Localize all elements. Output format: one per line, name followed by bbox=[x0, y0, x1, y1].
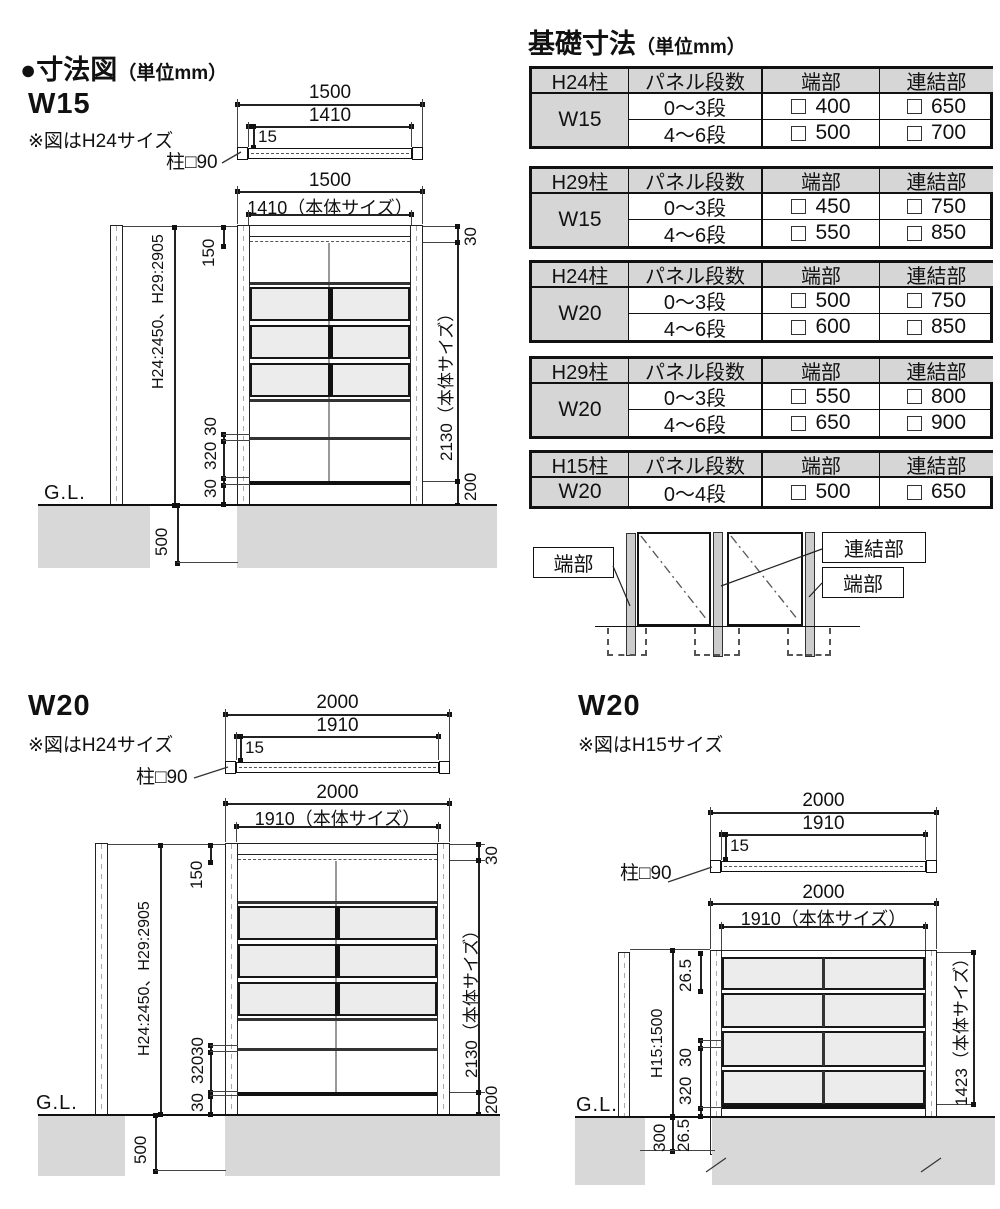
col-header-end: 端部 bbox=[763, 263, 880, 288]
end-value-cell: 400 bbox=[763, 94, 880, 120]
dim-line bbox=[236, 736, 439, 738]
rail bbox=[238, 901, 437, 904]
dim-line bbox=[223, 434, 225, 505]
post-cap-top-view bbox=[926, 860, 937, 873]
joint-value-cell: 800 bbox=[880, 384, 993, 410]
end-value: 500 bbox=[815, 480, 850, 504]
dim-label: 200 bbox=[482, 1086, 502, 1114]
dim-label: 1410（本体サイズ） bbox=[243, 194, 417, 220]
dim-line bbox=[725, 834, 727, 860]
dim-label: 1410 bbox=[248, 105, 412, 127]
w15-section-label: W15 bbox=[28, 88, 91, 121]
ext-line bbox=[925, 830, 926, 860]
bottom-rail bbox=[722, 1105, 925, 1109]
ground-fill bbox=[237, 506, 497, 568]
dim-label: 320 bbox=[201, 442, 221, 470]
end-value-cell: 500 bbox=[763, 478, 880, 506]
page-title: ●寸法図（単位mm） bbox=[20, 48, 227, 87]
dim-line bbox=[248, 214, 412, 216]
col-header-joint: 連結部 bbox=[880, 359, 993, 384]
dim-label: 30 bbox=[461, 227, 481, 246]
dim-label: 1423（本体サイズ） bbox=[947, 950, 972, 1106]
panel-center-line bbox=[822, 1071, 825, 1104]
end-value: 550 bbox=[815, 221, 850, 245]
foundation-outline bbox=[607, 628, 647, 656]
legend-label-end-right: 端部 bbox=[822, 567, 904, 598]
w15-size-note: ※図はH24サイズ bbox=[28, 126, 173, 153]
size-cell: W20 bbox=[532, 288, 629, 340]
dim-label: 1910 bbox=[721, 813, 926, 835]
post-size-label: 柱□90 bbox=[166, 147, 218, 174]
w20h24-size-note: ※図はH24サイズ bbox=[28, 730, 173, 757]
dim-label: H24:2450、H29:2905 bbox=[130, 901, 154, 1056]
ext-line bbox=[423, 481, 457, 482]
col-header-end: 端部 bbox=[763, 453, 880, 478]
square-symbol bbox=[907, 199, 922, 214]
dim-line bbox=[721, 834, 926, 836]
dim-line bbox=[237, 191, 423, 193]
dim-line bbox=[973, 952, 975, 1105]
dim-label: 150 bbox=[187, 861, 207, 889]
ext-line bbox=[210, 1095, 238, 1096]
steps-cell: 0〜3段 bbox=[629, 94, 763, 120]
size-cell: W15 bbox=[532, 194, 629, 246]
post-cap-top-view bbox=[439, 761, 450, 774]
square-symbol bbox=[791, 416, 806, 431]
dimension-drawing-page: { "header": {"title": "●寸法図", "unit": "（… bbox=[0, 0, 1000, 1209]
dim-label: 30 bbox=[188, 1093, 208, 1112]
ext-line bbox=[210, 1045, 238, 1046]
joint-value: 700 bbox=[931, 121, 966, 145]
end-value-cell: 650 bbox=[763, 410, 880, 436]
end-value-cell: 500 bbox=[763, 120, 880, 146]
rail bbox=[250, 282, 410, 285]
ext-line bbox=[438, 732, 439, 760]
square-symbol bbox=[791, 389, 806, 404]
square-symbol bbox=[907, 320, 922, 335]
joint-value: 750 bbox=[931, 195, 966, 219]
dim-line bbox=[253, 126, 255, 148]
dim-label: 30 bbox=[188, 1037, 208, 1056]
dim-label: 30 bbox=[482, 846, 502, 865]
end-value: 650 bbox=[815, 411, 850, 435]
dim-line bbox=[721, 926, 926, 928]
legend-label-end-left: 端部 bbox=[533, 547, 614, 578]
ext-line bbox=[936, 898, 937, 949]
post-size-label: 柱□90 bbox=[136, 762, 188, 789]
w20h15-section-label: W20 bbox=[578, 690, 641, 723]
fence-panel bbox=[722, 1070, 925, 1105]
col-header-joint: 連結部 bbox=[880, 263, 993, 288]
ground-fill bbox=[225, 1116, 500, 1176]
ext-line bbox=[422, 99, 423, 147]
col-header-end: 端部 bbox=[763, 169, 880, 194]
foundation-table-h24-w20: H24柱 パネル段数 端部 連結部 W20 0〜3段 500 750 4〜6段 … bbox=[529, 260, 993, 343]
dim-label: 15 bbox=[245, 738, 264, 758]
square-symbol bbox=[791, 226, 806, 241]
col-header-end: 端部 bbox=[763, 359, 880, 384]
ext-line bbox=[925, 922, 926, 950]
dim-label: 200 bbox=[461, 473, 481, 501]
dim-label: 500 bbox=[131, 1136, 151, 1164]
steps-cell: 0〜3段 bbox=[629, 384, 763, 410]
ext-line bbox=[449, 709, 450, 761]
col-header-joint: 連結部 bbox=[880, 453, 993, 478]
fence-panel bbox=[238, 944, 437, 978]
end-value: 600 bbox=[815, 315, 850, 339]
col-header-post: H24柱 bbox=[532, 263, 629, 288]
steps-cell: 0〜3段 bbox=[629, 288, 763, 314]
foundation-table-h15-w20: H15柱 パネル段数 端部 連結部 W20 0〜4段 500 650 bbox=[529, 450, 993, 509]
panel-mullion bbox=[328, 364, 333, 396]
end-value: 500 bbox=[815, 121, 850, 145]
panel-mullion bbox=[335, 907, 340, 939]
ground-line bbox=[38, 1114, 500, 1116]
end-value: 400 bbox=[815, 95, 850, 119]
bar-dashed-core bbox=[251, 153, 409, 154]
square-symbol bbox=[907, 126, 922, 141]
steps-cell: 4〜6段 bbox=[629, 120, 763, 146]
ext-line bbox=[210, 1091, 238, 1092]
col-header-post: H24柱 bbox=[532, 69, 629, 94]
ext-line bbox=[223, 434, 250, 435]
dim-label: 2130（本体サイズ） bbox=[457, 922, 482, 1078]
dim-label: 2000 bbox=[710, 790, 937, 812]
joint-value: 800 bbox=[931, 385, 966, 409]
dim-label: 500 bbox=[152, 528, 172, 556]
dim-label: 2000 bbox=[225, 692, 450, 714]
ext-line bbox=[210, 1051, 238, 1052]
panel-mullion bbox=[335, 983, 340, 1015]
square-symbol bbox=[907, 226, 922, 241]
joint-value-cell: 900 bbox=[880, 410, 993, 436]
post-cap-top-view bbox=[237, 147, 248, 160]
rail bbox=[250, 437, 410, 440]
col-header-steps: パネル段数 bbox=[629, 169, 763, 194]
ext-line bbox=[225, 709, 226, 761]
col-header-joint: 連結部 bbox=[880, 69, 993, 94]
ext-line bbox=[237, 99, 238, 147]
col-header-steps: パネル段数 bbox=[629, 263, 763, 288]
ground-fill bbox=[38, 506, 150, 568]
panel-center-line bbox=[822, 1032, 825, 1066]
ext-line bbox=[700, 1047, 722, 1048]
ext-line bbox=[449, 798, 450, 842]
joint-value-cell: 750 bbox=[880, 288, 993, 314]
ground-line bbox=[38, 504, 497, 506]
square-symbol bbox=[791, 485, 806, 500]
fence-panel bbox=[722, 993, 925, 1028]
rail bbox=[238, 1048, 437, 1051]
ext-line bbox=[700, 1107, 722, 1108]
end-value-cell: 550 bbox=[763, 220, 880, 246]
panel-mullion bbox=[328, 326, 333, 358]
dim-line bbox=[223, 227, 225, 247]
foundation-title-text: 基礎寸法 bbox=[528, 29, 636, 59]
panel-mullion bbox=[335, 945, 340, 977]
ground-level-label: G.L. bbox=[36, 1092, 78, 1115]
square-symbol bbox=[791, 293, 806, 308]
joint-value: 900 bbox=[931, 411, 966, 435]
foundation-table-h29-w15: H29柱 パネル段数 端部 連結部 W15 0〜3段 450 750 4〜6段 … bbox=[529, 166, 993, 249]
ext-line bbox=[223, 477, 250, 478]
square-symbol bbox=[907, 416, 922, 431]
dim-line bbox=[155, 1115, 157, 1172]
dim-line bbox=[236, 826, 439, 828]
joint-value-cell: 650 bbox=[880, 478, 993, 506]
joint-value-cell: 700 bbox=[880, 120, 993, 146]
dim-line bbox=[174, 227, 176, 506]
steps-cell: 4〜6段 bbox=[629, 410, 763, 436]
steps-cell: 0〜3段 bbox=[629, 194, 763, 220]
rail bbox=[250, 399, 410, 402]
ground-level-label: G.L. bbox=[576, 1094, 618, 1117]
fence-top-view-bar bbox=[236, 762, 439, 773]
end-value-cell: 450 bbox=[763, 194, 880, 220]
fence-panel bbox=[722, 957, 925, 990]
size-cell: W15 bbox=[532, 94, 629, 146]
w20h24-section-label: W20 bbox=[28, 690, 91, 723]
unit-note: （単位mm） bbox=[117, 63, 227, 84]
end-value: 550 bbox=[815, 385, 850, 409]
ext-line bbox=[422, 186, 423, 224]
post-size-label: 柱□90 bbox=[620, 858, 672, 885]
top-rail bbox=[237, 225, 423, 237]
panel-center-line bbox=[822, 994, 825, 1027]
fence-top-view-bar bbox=[248, 148, 412, 159]
ground-fill bbox=[712, 1118, 995, 1185]
col-header-steps: パネル段数 bbox=[629, 69, 763, 94]
ground-line bbox=[575, 1116, 995, 1118]
bar-dashed-core bbox=[724, 866, 923, 867]
end-value: 450 bbox=[815, 195, 850, 219]
dim-label: 1500 bbox=[237, 82, 423, 104]
square-symbol bbox=[791, 320, 806, 335]
ext-line bbox=[721, 830, 722, 860]
end-value-cell: 500 bbox=[763, 288, 880, 314]
col-header-post: H15柱 bbox=[532, 453, 629, 478]
end-value-cell: 550 bbox=[763, 384, 880, 410]
col-header-steps: パネル段数 bbox=[629, 359, 763, 384]
end-value-cell: 600 bbox=[763, 314, 880, 340]
post-label-leader-line bbox=[194, 767, 228, 778]
joint-value-cell: 750 bbox=[880, 194, 993, 220]
ext-line bbox=[223, 440, 250, 441]
dim-label: 26.5 bbox=[674, 1119, 694, 1152]
dim-line bbox=[177, 505, 179, 564]
fence-panel bbox=[250, 325, 410, 359]
dim-line bbox=[478, 1092, 480, 1115]
fence-panel bbox=[238, 906, 437, 940]
col-header-post: H29柱 bbox=[532, 169, 629, 194]
joint-value: 650 bbox=[931, 480, 966, 504]
dim-line bbox=[210, 1045, 212, 1115]
dim-label: 26.5 bbox=[676, 959, 696, 992]
ext-line bbox=[155, 1170, 226, 1171]
end-value: 500 bbox=[815, 289, 850, 313]
center-joint-line bbox=[335, 861, 337, 1095]
ext-line bbox=[236, 732, 237, 760]
legend-panel bbox=[727, 532, 803, 626]
dim-label: 15 bbox=[730, 836, 749, 856]
body-top-dashed-line bbox=[238, 859, 437, 860]
square-symbol bbox=[907, 99, 922, 114]
col-header-steps: パネル段数 bbox=[629, 453, 763, 478]
unit-note: （単位mm） bbox=[636, 37, 746, 58]
body-top-dashed-line bbox=[250, 241, 410, 242]
legend-ground-line bbox=[595, 626, 860, 627]
joint-value: 850 bbox=[931, 221, 966, 245]
panel-center-line bbox=[822, 958, 825, 989]
ext-line bbox=[438, 822, 439, 842]
ground-level-label: G.L. bbox=[44, 482, 86, 505]
steps-cell: 4〜6段 bbox=[629, 314, 763, 340]
bottom-rail bbox=[250, 481, 410, 485]
bottom-rail bbox=[238, 1092, 437, 1096]
ext-line bbox=[248, 122, 249, 147]
ext-line bbox=[411, 210, 412, 226]
rail bbox=[238, 1018, 437, 1021]
ext-line bbox=[411, 122, 412, 147]
foundation-table-h24-w15: H24柱 パネル段数 端部 連結部 W15 0〜3段 400 650 4〜6段 … bbox=[529, 66, 993, 149]
size-cell: W20 bbox=[532, 384, 629, 436]
ground-fill bbox=[575, 1118, 645, 1185]
dim-label: 30 bbox=[201, 479, 221, 498]
square-symbol bbox=[907, 389, 922, 404]
dim-line bbox=[457, 242, 459, 482]
dim-line bbox=[700, 953, 702, 992]
ext-line bbox=[700, 1040, 722, 1041]
ext-line bbox=[936, 807, 937, 860]
ext-line bbox=[177, 562, 238, 563]
fence-panel bbox=[250, 287, 410, 321]
joint-value: 850 bbox=[931, 315, 966, 339]
dim-line bbox=[240, 736, 242, 761]
ext-line bbox=[248, 210, 249, 226]
dim-line bbox=[210, 845, 212, 863]
joint-value: 650 bbox=[931, 95, 966, 119]
foundation-table-h29-w20: H29柱 パネル段数 端部 連結部 W20 0〜3段 550 800 4〜6段 … bbox=[529, 356, 993, 439]
fence-panel bbox=[722, 1031, 925, 1067]
dim-label: 320 bbox=[188, 1056, 208, 1084]
panel-mullion bbox=[328, 288, 333, 320]
dim-label: 2000 bbox=[225, 782, 450, 804]
dim-line bbox=[672, 950, 674, 1117]
ext-line bbox=[123, 226, 237, 227]
dim-label: H15:1500 bbox=[649, 1009, 667, 1078]
foundation-outline bbox=[694, 628, 740, 656]
dim-label: 320 bbox=[676, 1077, 696, 1105]
dim-label: 1500 bbox=[237, 170, 423, 192]
dim-label: 2000 bbox=[710, 882, 937, 904]
size-cell: W20 bbox=[532, 478, 629, 506]
steps-cell: 4〜6段 bbox=[629, 220, 763, 246]
ext-line bbox=[423, 242, 457, 243]
post-cap-top-view bbox=[412, 147, 423, 160]
ext-line bbox=[237, 186, 238, 224]
square-symbol bbox=[791, 99, 806, 114]
square-symbol bbox=[907, 293, 922, 308]
dim-label: 15 bbox=[258, 127, 277, 147]
ext-line bbox=[710, 898, 711, 949]
square-symbol bbox=[791, 126, 806, 141]
ground-fill bbox=[38, 1116, 125, 1176]
square-symbol bbox=[791, 199, 806, 214]
post-cap-top-view bbox=[225, 761, 236, 774]
ext-line bbox=[423, 226, 457, 227]
square-symbol bbox=[907, 485, 922, 500]
joint-value-cell: 850 bbox=[880, 220, 993, 246]
fence-top-view-bar bbox=[721, 861, 926, 872]
dim-label: 1910 bbox=[236, 715, 439, 737]
top-rail bbox=[225, 843, 450, 855]
ext-line bbox=[710, 807, 711, 860]
legend-label-joint: 連結部 bbox=[822, 532, 926, 563]
col-header-end: 端部 bbox=[763, 69, 880, 94]
dim-label: 30 bbox=[676, 1048, 696, 1067]
bar-dashed-core bbox=[239, 767, 436, 768]
col-header-post: H29柱 bbox=[532, 359, 629, 384]
dim-label: 2130（本体サイズ） bbox=[432, 305, 457, 461]
dim-line bbox=[457, 481, 459, 506]
foundation-title: 基礎寸法（単位mm） bbox=[528, 22, 746, 61]
dimension-figure-title: ●寸法図 bbox=[20, 55, 117, 85]
ext-line bbox=[223, 484, 250, 485]
fence-panel bbox=[250, 363, 410, 397]
ext-line bbox=[721, 922, 722, 950]
ext-line bbox=[225, 798, 226, 842]
dim-label: 30 bbox=[201, 417, 221, 436]
dim-label: 300 bbox=[650, 1124, 670, 1152]
dim-line bbox=[160, 845, 162, 1115]
fence-panel bbox=[238, 982, 437, 1016]
steps-cell: 0〜4段 bbox=[629, 478, 763, 506]
joint-value-cell: 850 bbox=[880, 314, 993, 340]
post-cap-top-view bbox=[710, 860, 721, 873]
dim-label: H24:2450、H29:2905 bbox=[144, 234, 168, 389]
joint-value: 750 bbox=[931, 289, 966, 313]
joint-value-cell: 650 bbox=[880, 94, 993, 120]
ext-line bbox=[236, 822, 237, 842]
post-label-leader-line bbox=[668, 867, 712, 882]
col-header-joint: 連結部 bbox=[880, 169, 993, 194]
dim-label: 150 bbox=[199, 239, 219, 267]
foundation-outline bbox=[787, 628, 831, 656]
legend-panel bbox=[637, 532, 711, 626]
w20h15-size-note: ※図はH15サイズ bbox=[578, 730, 723, 757]
